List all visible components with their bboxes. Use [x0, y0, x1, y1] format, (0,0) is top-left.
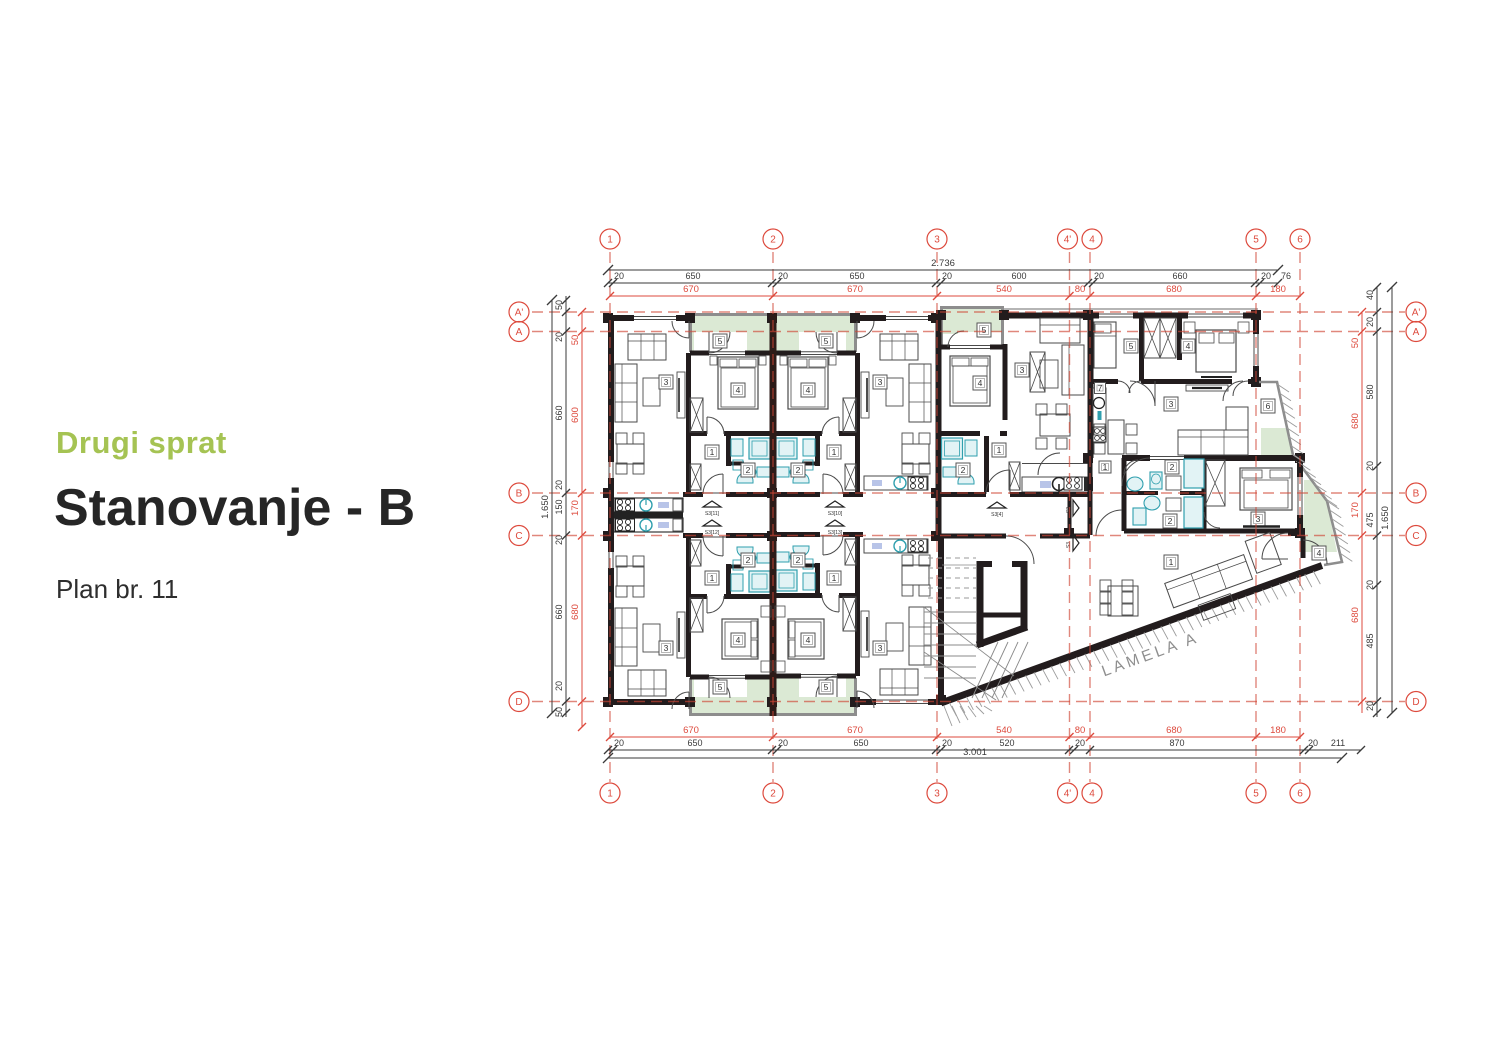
- svg-text:650: 650: [687, 738, 702, 748]
- svg-text:5: 5: [982, 325, 987, 335]
- svg-text:670: 670: [683, 725, 699, 736]
- svg-text:5: 5: [824, 682, 829, 692]
- svg-text:D: D: [1412, 697, 1419, 708]
- svg-text:20: 20: [554, 535, 564, 545]
- svg-text:3: 3: [878, 643, 883, 653]
- svg-text:2.736: 2.736: [931, 258, 955, 269]
- svg-text:A': A': [1412, 308, 1421, 319]
- svg-text:650: 650: [853, 738, 868, 748]
- svg-text:680: 680: [570, 604, 581, 620]
- svg-text:20: 20: [1261, 271, 1271, 281]
- svg-text:4: 4: [806, 385, 811, 395]
- svg-text:20: 20: [942, 271, 952, 281]
- svg-text:S3[11]: S3[11]: [705, 511, 720, 517]
- svg-text:3: 3: [934, 235, 940, 246]
- svg-text:1.650: 1.650: [540, 495, 551, 519]
- svg-text:6: 6: [1266, 401, 1271, 411]
- svg-text:5: 5: [1253, 789, 1259, 800]
- svg-text:2: 2: [770, 789, 776, 800]
- svg-text:5: 5: [718, 336, 723, 346]
- svg-text:180: 180: [1270, 284, 1286, 295]
- svg-text:50: 50: [554, 300, 564, 310]
- svg-text:211: 211: [1331, 738, 1345, 748]
- svg-text:1: 1: [710, 573, 715, 583]
- svg-text:5: 5: [1253, 235, 1259, 246]
- svg-text:20: 20: [942, 738, 952, 748]
- svg-text:1: 1: [832, 573, 837, 583]
- svg-text:S3[10]: S3[10]: [828, 511, 843, 517]
- svg-text:40: 40: [1365, 290, 1375, 300]
- svg-text:1: 1: [1103, 462, 1108, 472]
- svg-text:76: 76: [1281, 271, 1291, 281]
- svg-text:170: 170: [570, 500, 581, 516]
- svg-text:650: 650: [849, 271, 864, 281]
- svg-text:2: 2: [796, 465, 801, 475]
- svg-text:870: 870: [1169, 738, 1184, 748]
- svg-text:3: 3: [934, 789, 940, 800]
- svg-text:3: 3: [664, 643, 669, 653]
- svg-text:80: 80: [1075, 725, 1086, 736]
- svg-text:20: 20: [778, 271, 788, 281]
- svg-text:2: 2: [796, 555, 801, 565]
- svg-text:20: 20: [614, 738, 624, 748]
- svg-text:520: 520: [999, 738, 1014, 748]
- svg-text:6: 6: [1297, 235, 1303, 246]
- svg-text:B: B: [516, 489, 523, 500]
- svg-text:4: 4: [1186, 341, 1191, 351]
- svg-text:485: 485: [1365, 633, 1375, 648]
- svg-text:20: 20: [1094, 271, 1104, 281]
- svg-text:2: 2: [746, 465, 751, 475]
- svg-text:20: 20: [1075, 738, 1085, 748]
- svg-text:660: 660: [1172, 271, 1187, 281]
- svg-text:4: 4: [1317, 548, 1322, 558]
- svg-text:580: 580: [1365, 384, 1375, 399]
- svg-text:180: 180: [1270, 725, 1286, 736]
- svg-text:D: D: [515, 697, 522, 708]
- svg-text:20: 20: [554, 332, 564, 342]
- svg-text:2: 2: [961, 465, 966, 475]
- svg-text:2: 2: [1168, 516, 1173, 526]
- svg-text:4: 4: [736, 635, 741, 645]
- svg-text:A': A': [515, 308, 524, 319]
- svg-text:A: A: [1413, 327, 1420, 338]
- svg-text:4: 4: [806, 635, 811, 645]
- svg-text:50: 50: [1350, 338, 1361, 349]
- svg-text:A: A: [516, 327, 523, 338]
- svg-text:1.650: 1.650: [1380, 506, 1391, 530]
- svg-text:2: 2: [746, 555, 751, 565]
- svg-text:540: 540: [996, 284, 1012, 295]
- svg-text:4': 4': [1064, 235, 1072, 246]
- svg-text:S3[4]: S3[4]: [991, 512, 1003, 518]
- svg-text:4: 4: [736, 385, 741, 395]
- svg-text:20: 20: [1365, 461, 1375, 471]
- svg-text:20: 20: [614, 271, 624, 281]
- svg-text:680: 680: [1350, 607, 1361, 623]
- svg-text:1: 1: [607, 235, 613, 246]
- svg-text:20: 20: [1365, 317, 1375, 327]
- svg-text:C: C: [515, 531, 522, 542]
- svg-text:4': 4': [1064, 789, 1072, 800]
- svg-text:1: 1: [997, 445, 1002, 455]
- svg-text:5: 5: [824, 336, 829, 346]
- svg-text:670: 670: [847, 725, 863, 736]
- svg-text:50: 50: [570, 335, 581, 346]
- svg-text:B: B: [1413, 489, 1420, 500]
- svg-text:4: 4: [978, 378, 983, 388]
- svg-text:475: 475: [1365, 512, 1375, 527]
- svg-text:1: 1: [832, 447, 837, 457]
- svg-text:660: 660: [554, 604, 564, 619]
- svg-text:4: 4: [1089, 789, 1095, 800]
- svg-text:670: 670: [683, 284, 699, 295]
- svg-text:3: 3: [878, 377, 883, 387]
- svg-text:1: 1: [607, 789, 613, 800]
- svg-text:20: 20: [778, 738, 788, 748]
- svg-text:660: 660: [554, 405, 564, 420]
- svg-text:2: 2: [1170, 462, 1175, 472]
- svg-text:1: 1: [710, 447, 715, 457]
- svg-text:680: 680: [1166, 284, 1182, 295]
- svg-text:7: 7: [1098, 383, 1103, 393]
- svg-text:6: 6: [1297, 789, 1303, 800]
- svg-text:150: 150: [554, 499, 564, 514]
- svg-text:20: 20: [554, 480, 564, 490]
- svg-text:5: 5: [718, 682, 723, 692]
- svg-text:4: 4: [1089, 235, 1095, 246]
- svg-text:650: 650: [685, 271, 700, 281]
- svg-text:670: 670: [847, 284, 863, 295]
- svg-text:3.001: 3.001: [963, 747, 987, 758]
- svg-text:20: 20: [1365, 701, 1375, 711]
- svg-text:540: 540: [996, 725, 1012, 736]
- svg-text:50: 50: [554, 707, 564, 717]
- svg-text:680: 680: [1350, 413, 1361, 429]
- svg-text:C: C: [1412, 531, 1419, 542]
- svg-text:20: 20: [1308, 738, 1318, 748]
- svg-text:3: 3: [664, 377, 669, 387]
- svg-text:3: 3: [1169, 399, 1174, 409]
- svg-text:5: 5: [1129, 341, 1134, 351]
- svg-text:80: 80: [1075, 284, 1086, 295]
- svg-text:20: 20: [1365, 580, 1375, 590]
- svg-text:3: 3: [1020, 365, 1025, 375]
- svg-text:600: 600: [1011, 271, 1026, 281]
- svg-text:1: 1: [1169, 557, 1174, 567]
- svg-text:2: 2: [770, 235, 776, 246]
- svg-text:600: 600: [570, 407, 581, 423]
- svg-text:20: 20: [554, 681, 564, 691]
- svg-text:680: 680: [1166, 725, 1182, 736]
- svg-text:170: 170: [1350, 502, 1361, 518]
